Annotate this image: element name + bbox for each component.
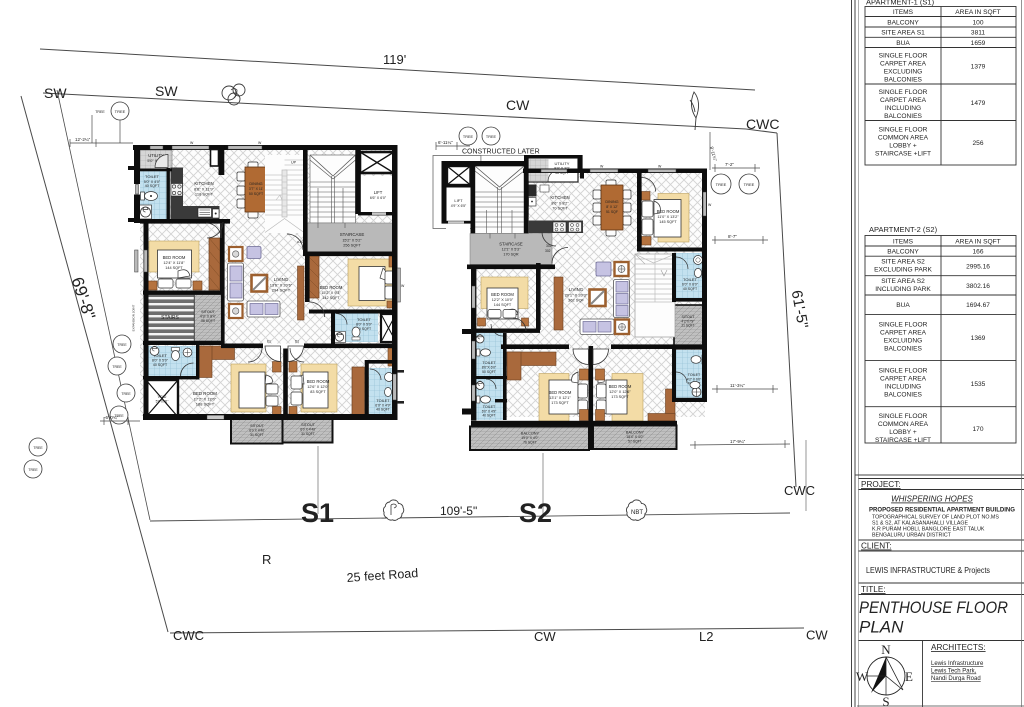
svg-text:SITOUT: SITOUT bbox=[201, 310, 216, 314]
svg-text:EXCLUDING PARK: EXCLUDING PARK bbox=[874, 267, 932, 274]
svg-text:LEWIS INFRASTRUCTURE & Project: LEWIS INFRASTRUCTURE & Projects bbox=[866, 565, 990, 575]
svg-text:S: S bbox=[882, 694, 889, 707]
svg-text:SITOUT: SITOUT bbox=[681, 315, 695, 319]
svg-text:SINGLE FLOOR: SINGLE FLOOR bbox=[879, 89, 928, 96]
svg-text:31 SQFT: 31 SQFT bbox=[250, 433, 264, 437]
svg-text:Lewis Tech Park,: Lewis Tech Park, bbox=[931, 669, 977, 675]
svg-text:LOBBY +: LOBBY + bbox=[889, 429, 917, 436]
svg-text:8'6" X 8'2": 8'6" X 8'2" bbox=[551, 201, 569, 205]
svg-text:15'2" X 9'3": 15'2" X 9'3" bbox=[321, 291, 341, 295]
svg-text:BENGALURU URBAN DISTRICT: BENGALURU URBAN DISTRICT bbox=[872, 533, 952, 539]
svg-text:BALCONY: BALCONY bbox=[626, 431, 645, 435]
svg-text:1659: 1659 bbox=[971, 40, 986, 47]
svg-text:STAIRS: STAIRS bbox=[161, 315, 179, 321]
svg-text:N: N bbox=[881, 642, 891, 657]
svg-text:UTILITY: UTILITY bbox=[555, 161, 570, 166]
svg-text:38 SQFT: 38 SQFT bbox=[201, 319, 216, 323]
svg-text:TREE: TREE bbox=[115, 109, 126, 114]
svg-text:ITEMS: ITEMS bbox=[893, 9, 914, 16]
svg-text:PROPOSED RESIDENTIAL APARTMEN: PROPOSED RESIDENTIAL APARTMENT BUILDING bbox=[869, 507, 1015, 514]
svg-text:TOILET: TOILET bbox=[483, 405, 496, 409]
svg-text:TOILET: TOILET bbox=[688, 373, 701, 377]
svg-text:76 SQFT: 76 SQFT bbox=[523, 440, 537, 444]
svg-text:7'-2": 7'-2" bbox=[725, 162, 734, 167]
svg-text:TREE: TREE bbox=[28, 468, 38, 472]
svg-text:1694.67: 1694.67 bbox=[966, 302, 990, 309]
svg-text:STAIRCASE +LIFT: STAIRCASE +LIFT bbox=[875, 151, 931, 158]
svg-text:119': 119' bbox=[383, 52, 406, 67]
svg-text:W: W bbox=[856, 669, 869, 684]
svg-text:SINGLE FLOOR: SINGLE FLOOR bbox=[879, 413, 928, 420]
svg-text:142 SQFT: 142 SQFT bbox=[322, 296, 340, 300]
svg-text:DINING: DINING bbox=[249, 182, 262, 186]
svg-text:5'0"X7'6": 5'0"X7'6" bbox=[156, 399, 169, 403]
svg-text:11'0" X 13'2": 11'0" X 13'2" bbox=[657, 215, 679, 219]
svg-text:57 SQFT: 57 SQFT bbox=[628, 439, 642, 443]
svg-text:EXCLUDING: EXCLUDING bbox=[884, 69, 922, 76]
svg-text:NBT: NBT bbox=[631, 510, 643, 516]
svg-text:WHISPERING HOPES: WHISPERING HOPES bbox=[891, 495, 973, 504]
svg-text:109'-5": 109'-5" bbox=[440, 504, 477, 518]
svg-text:TOILET: TOILET bbox=[357, 317, 371, 322]
svg-text:L2: L2 bbox=[699, 629, 713, 644]
svg-text:TREE: TREE bbox=[463, 135, 474, 139]
svg-text:DINING: DINING bbox=[605, 200, 618, 204]
svg-text:SITE AREA S2: SITE AREA S2 bbox=[881, 278, 925, 285]
svg-text:CW: CW bbox=[506, 97, 530, 113]
svg-text:12'1" X 5'3": 12'1" X 5'3" bbox=[502, 248, 521, 252]
svg-text:CONSTRUCTED LATER: CONSTRUCTED LATER bbox=[462, 149, 540, 156]
svg-text:4'9" X 8'4": 4'9" X 8'4" bbox=[200, 315, 217, 319]
svg-text:2995.16: 2995.16 bbox=[966, 263, 990, 270]
svg-text:SINGLE FLOOR: SINGLE FLOOR bbox=[879, 368, 928, 375]
svg-text:TOILET: TOILET bbox=[683, 277, 697, 282]
svg-text:15'2" X 5'2": 15'2" X 5'2" bbox=[342, 238, 362, 242]
svg-text:PENTHOUSE FLOOR: PENTHOUSE FLOOR bbox=[859, 598, 1008, 617]
svg-text:13'1" X 12'1": 13'1" X 12'1" bbox=[549, 396, 571, 400]
svg-text:PROJECT:: PROJECT: bbox=[861, 480, 901, 489]
svg-text:294 SQFT: 294 SQFT bbox=[272, 287, 291, 292]
svg-text:TOILET: TOILET bbox=[482, 361, 496, 365]
svg-text:AREA IN SQFT: AREA IN SQFT bbox=[955, 9, 1000, 16]
svg-text:E: E bbox=[905, 669, 913, 684]
svg-text:VOID: VOID bbox=[158, 395, 167, 399]
svg-text:BED ROOM: BED ROOM bbox=[609, 384, 632, 389]
svg-text:118 SQFT: 118 SQFT bbox=[195, 191, 214, 196]
svg-text:INCLUDING: INCLUDING bbox=[885, 105, 921, 112]
svg-text:BALCONIES: BALCONIES bbox=[884, 77, 922, 84]
svg-text:TREE: TREE bbox=[117, 343, 127, 347]
svg-text:362 SQF: 362 SQF bbox=[568, 297, 585, 302]
svg-text:Lewis Infrastructure: Lewis Infrastructure bbox=[931, 661, 984, 667]
svg-text:TREE: TREE bbox=[716, 182, 727, 187]
svg-text:TREE: TREE bbox=[95, 110, 105, 114]
svg-text:CW: CW bbox=[534, 629, 556, 644]
svg-text:ITEMS: ITEMS bbox=[893, 238, 914, 245]
svg-text:BALCONIES: BALCONIES bbox=[884, 392, 922, 399]
svg-text:BED ROOM: BED ROOM bbox=[657, 209, 680, 214]
svg-text:SW: SW bbox=[44, 85, 67, 101]
svg-text:u-001: u-001 bbox=[297, 240, 306, 244]
svg-text:ARCHITECTS:: ARCHITECTS: bbox=[931, 643, 986, 652]
svg-text:51 SQF: 51 SQF bbox=[606, 210, 618, 214]
svg-text:1379: 1379 bbox=[971, 64, 986, 71]
svg-text:BALCONY: BALCONY bbox=[887, 19, 919, 26]
svg-text:S1: S1 bbox=[301, 498, 334, 528]
svg-text:166: 166 bbox=[972, 249, 983, 256]
svg-text:D1: D1 bbox=[295, 340, 299, 344]
svg-text:50 SQFT: 50 SQFT bbox=[482, 370, 496, 374]
svg-text:CW: CW bbox=[806, 628, 828, 643]
svg-text:BED ROOM: BED ROOM bbox=[549, 390, 572, 395]
svg-text:AREA IN SQFT: AREA IN SQFT bbox=[955, 238, 1000, 245]
svg-text:SINGLE FLOOR: SINGLE FLOOR bbox=[879, 53, 928, 60]
svg-text:CARPET AREA: CARPET AREA bbox=[880, 330, 927, 337]
svg-text:145 SQFT: 145 SQFT bbox=[659, 220, 677, 224]
svg-text:12'2" X 10'0": 12'2" X 10'0" bbox=[492, 298, 514, 302]
svg-text:40 SQFT: 40 SQFT bbox=[153, 363, 168, 367]
svg-text:6'0" X 6'0": 6'0" X 6'0" bbox=[682, 283, 699, 287]
svg-text:STAIRCASE +LIFT: STAIRCASE +LIFT bbox=[875, 437, 931, 444]
svg-text:UP: UP bbox=[291, 161, 297, 165]
svg-text:TREE: TREE bbox=[486, 135, 497, 139]
svg-text:11'-3¼": 11'-3¼" bbox=[730, 383, 745, 388]
svg-text:TOILET: TOILET bbox=[376, 399, 390, 403]
svg-text:LIFT: LIFT bbox=[374, 190, 383, 195]
svg-text:12'4" X 11'8": 12'4" X 11'8" bbox=[163, 261, 185, 265]
svg-text:50 SQFT: 50 SQFT bbox=[249, 192, 264, 196]
svg-text:E1: E1 bbox=[267, 340, 271, 344]
svg-text:KITCHEN: KITCHEN bbox=[194, 181, 213, 186]
svg-text:6'6" X 6'0": 6'6" X 6'0" bbox=[370, 196, 387, 200]
svg-text:3811: 3811 bbox=[971, 30, 986, 37]
svg-text:BALCONY: BALCONY bbox=[521, 432, 540, 436]
svg-text:40 SQFT: 40 SQFT bbox=[483, 414, 496, 418]
svg-text:EXPANSION JOINT: EXPANSION JOINT bbox=[132, 304, 136, 331]
svg-text:12'0" X 12'6": 12'0" X 12'6" bbox=[609, 390, 631, 394]
svg-text:BED ROOM: BED ROOM bbox=[193, 391, 217, 396]
svg-text:EXCLUIDNG: EXCLUIDNG bbox=[884, 338, 922, 345]
svg-text:302: 302 bbox=[546, 244, 552, 248]
svg-text:CARPET AREA: CARPET AREA bbox=[880, 376, 927, 383]
svg-text:PLAN: PLAN bbox=[859, 618, 904, 637]
svg-text:LIVING: LIVING bbox=[274, 277, 289, 282]
svg-text:CLIENT:: CLIENT: bbox=[861, 542, 891, 551]
svg-text:INCLUDING: INCLUDING bbox=[885, 384, 921, 391]
svg-text:40 SQFT: 40 SQFT bbox=[145, 184, 160, 188]
svg-text:256 SQFT: 256 SQFT bbox=[343, 243, 361, 247]
svg-text:170: 170 bbox=[972, 426, 983, 433]
svg-text:40 SQFT: 40 SQFT bbox=[683, 287, 698, 291]
svg-text:-6'-0¾": -6'-0¾" bbox=[104, 415, 119, 420]
svg-text:COMMON AREA: COMMON AREA bbox=[878, 135, 929, 142]
svg-text:BUA: BUA bbox=[896, 40, 910, 47]
svg-text:21 SQFT: 21 SQFT bbox=[681, 324, 694, 328]
svg-text:3'7" X 11': 3'7" X 11' bbox=[249, 187, 264, 191]
svg-text:BALCONIES: BALCONIES bbox=[884, 113, 922, 120]
svg-text:SW: SW bbox=[155, 83, 178, 99]
svg-text:STAIRCASE: STAIRCASE bbox=[499, 242, 523, 247]
svg-text:TREE: TREE bbox=[33, 446, 43, 450]
svg-text:APARTMENT-2 (S2): APARTMENT-2 (S2) bbox=[869, 225, 938, 234]
svg-text:CARPET AREA: CARPET AREA bbox=[880, 97, 927, 104]
svg-text:144 SQFT: 144 SQFT bbox=[165, 266, 183, 270]
svg-text:TREE: TREE bbox=[121, 392, 131, 396]
svg-text:1369: 1369 bbox=[971, 335, 986, 342]
svg-text:LIVING: LIVING bbox=[569, 287, 584, 292]
svg-text:8'-7": 8'-7" bbox=[728, 234, 737, 239]
svg-text:TOILET: TOILET bbox=[145, 174, 159, 179]
svg-text:SITOUT: SITOUT bbox=[301, 423, 316, 427]
svg-text:100: 100 bbox=[972, 19, 983, 26]
svg-text:SITOUT: SITOUT bbox=[250, 424, 265, 428]
svg-text:12'6" X 12'0": 12'6" X 12'0" bbox=[307, 385, 329, 389]
svg-text:INCLUDING PARK: INCLUDING PARK bbox=[875, 286, 931, 293]
svg-text:TREE: TREE bbox=[744, 182, 755, 187]
svg-text:3802.16: 3802.16 bbox=[966, 283, 990, 290]
svg-text:4'9" X 6'5": 4'9" X 6'5" bbox=[451, 204, 467, 208]
svg-text:CARPET AREA: CARPET AREA bbox=[880, 61, 927, 68]
svg-text:CWC: CWC bbox=[784, 483, 815, 498]
svg-text:LOBBY +: LOBBY + bbox=[889, 143, 917, 150]
svg-text:COMMON AREA: COMMON AREA bbox=[878, 421, 929, 428]
svg-text:188 SQFT: 188 SQFT bbox=[196, 402, 215, 407]
svg-text:173 SQFT: 173 SQFT bbox=[551, 401, 569, 405]
svg-text:R: R bbox=[262, 552, 271, 567]
svg-text:BUA: BUA bbox=[896, 302, 910, 309]
svg-text:302: 302 bbox=[545, 249, 551, 253]
svg-text:SINGLE FLOOR: SINGLE FLOOR bbox=[879, 322, 928, 329]
svg-text:144 SQFT: 144 SQFT bbox=[494, 303, 512, 307]
svg-text:BED ROOM: BED ROOM bbox=[307, 379, 330, 384]
svg-text:TREE: TREE bbox=[112, 365, 122, 369]
svg-text:BALCONIES: BALCONIES bbox=[884, 346, 922, 353]
svg-text:40 SQFT: 40 SQFT bbox=[376, 408, 390, 412]
svg-text:31 SQFT: 31 SQFT bbox=[301, 432, 315, 436]
svg-text:LIFT: LIFT bbox=[454, 198, 463, 203]
svg-text:8' X 12': 8' X 12' bbox=[606, 205, 618, 209]
svg-text:12'-2¼": 12'-2¼" bbox=[75, 137, 91, 142]
svg-text:Nandi Durga Road: Nandi Durga Road bbox=[931, 676, 981, 682]
svg-text:1479: 1479 bbox=[971, 100, 986, 107]
svg-text:BED ROOM: BED ROOM bbox=[491, 292, 514, 297]
svg-text:6'-11¼": 6'-11¼" bbox=[438, 140, 453, 145]
svg-text:1535: 1535 bbox=[971, 381, 986, 388]
svg-text:APARTMENT-1 (S1): APARTMENT-1 (S1) bbox=[866, 0, 935, 7]
svg-text:S2: S2 bbox=[519, 498, 552, 528]
svg-text:KITCHEN: KITCHEN bbox=[550, 195, 569, 200]
svg-text:CWC: CWC bbox=[173, 628, 204, 643]
svg-text:173 SQFT: 173 SQFT bbox=[611, 395, 629, 399]
svg-text:TITLE:: TITLE: bbox=[861, 585, 886, 594]
svg-text:STAIRCASE: STAIRCASE bbox=[340, 232, 365, 237]
svg-text:BED ROOM: BED ROOM bbox=[320, 285, 343, 290]
svg-text:70 SQFT: 70 SQFT bbox=[552, 206, 568, 210]
svg-text:83 SQFT: 83 SQFT bbox=[310, 390, 326, 394]
svg-text:SINGLE FLOOR: SINGLE FLOOR bbox=[879, 127, 928, 134]
svg-text:170 SQR: 170 SQR bbox=[503, 253, 519, 257]
svg-text:BED ROOM: BED ROOM bbox=[163, 255, 186, 260]
svg-text:SITE AREA S2: SITE AREA S2 bbox=[881, 259, 925, 266]
svg-text:256: 256 bbox=[972, 140, 983, 147]
svg-text:SITE AREA S1: SITE AREA S1 bbox=[881, 30, 925, 37]
svg-text:BALCONY: BALCONY bbox=[887, 249, 919, 256]
svg-text:17'-9¼": 17'-9¼" bbox=[730, 439, 746, 444]
